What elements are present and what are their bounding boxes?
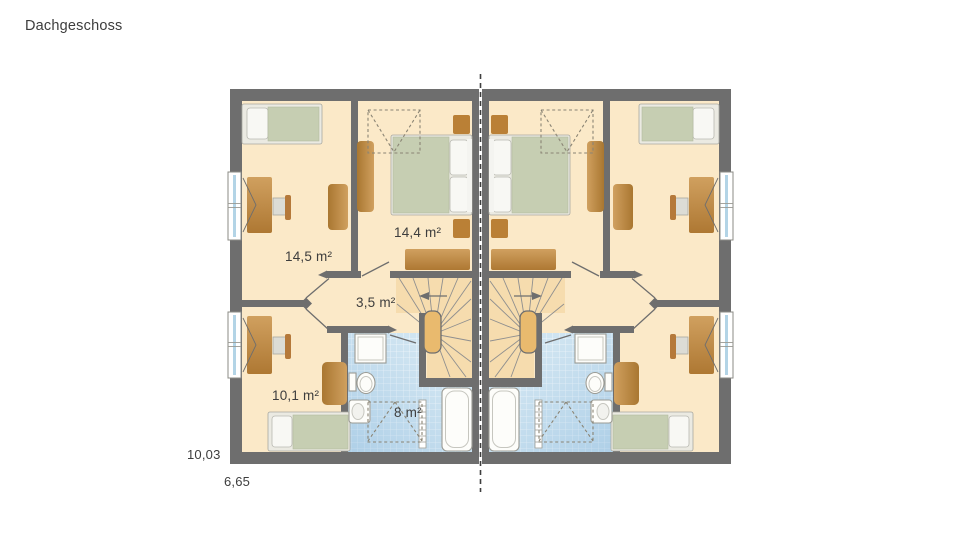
label-hallway: 3,5 m² — [356, 295, 396, 310]
label-bedroom-top: 14,5 m² — [285, 249, 332, 264]
double-bed-left — [391, 135, 472, 215]
sideboard-left — [405, 249, 470, 270]
dimension-width: 10,03 — [187, 447, 221, 462]
chair — [285, 334, 291, 359]
label-bathroom: 8 m² — [394, 405, 422, 420]
wardrobe-left — [357, 141, 374, 212]
dresser-bottom-right — [614, 362, 639, 405]
bathtub-left — [442, 388, 472, 451]
dresser-top-right — [613, 184, 633, 230]
shower-left — [355, 334, 386, 363]
page-title: Dachgeschoss — [25, 18, 123, 34]
single-bed-top-left — [242, 104, 322, 144]
dresser-top-left — [328, 184, 348, 230]
dresser-bottom-left — [322, 362, 347, 405]
single-bed-top-right — [639, 104, 719, 144]
window-right-top — [720, 172, 733, 240]
wall-left — [230, 89, 242, 464]
double-bed-right — [489, 135, 570, 215]
single-bed-bottom-right — [611, 412, 693, 451]
shower-right — [575, 334, 606, 363]
label-bedroom-bottom: 10,1 m² — [272, 388, 319, 403]
single-bed-bottom-left — [268, 412, 350, 451]
window-left-top — [228, 172, 241, 240]
towel-radiator-right — [535, 400, 542, 448]
chair — [285, 195, 291, 220]
bathtub-right — [489, 388, 519, 451]
window-right-bottom — [720, 312, 733, 378]
chair — [670, 334, 676, 359]
washbasin-left — [349, 400, 370, 423]
floor-plan: Dachgeschoss — [0, 0, 960, 558]
washbasin-right — [591, 400, 612, 423]
toilet-right — [586, 373, 612, 394]
wardrobe-right — [587, 141, 604, 212]
nightstand — [491, 219, 508, 238]
toilet-left — [349, 373, 375, 394]
nightstand — [453, 219, 470, 238]
chair — [670, 195, 676, 220]
window-left-bottom — [228, 312, 241, 378]
nightstand — [491, 115, 508, 134]
label-bedroom-center: 14,4 m² — [394, 225, 441, 240]
stair-handrail-left — [424, 311, 441, 353]
nightstand — [453, 115, 470, 134]
wall-right — [719, 89, 731, 464]
stair-handrail-right — [520, 311, 537, 353]
sideboard-right — [491, 249, 556, 270]
dimension-depth: 6,65 — [224, 474, 250, 489]
